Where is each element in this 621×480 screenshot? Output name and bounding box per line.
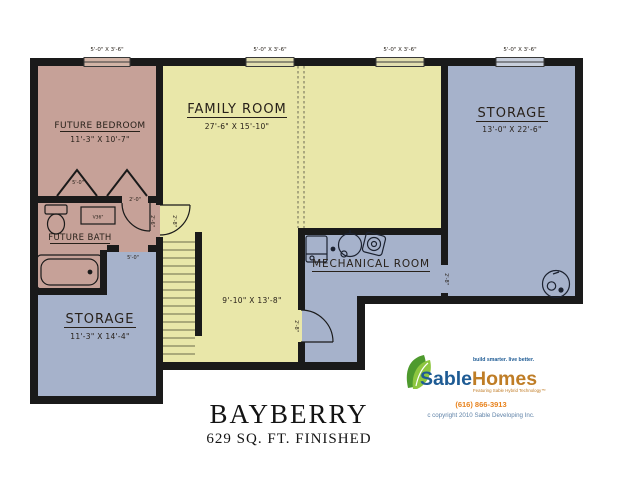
logo-phone: (616) 866-3913 (455, 400, 506, 409)
mech-storage-opening-label: 2'-8" (443, 273, 449, 285)
room-label-future-bedroom: FUTURE BEDROOM (54, 121, 145, 131)
room-label-mechanical: MECHANICAL ROOM (312, 258, 430, 270)
window-family-left (246, 58, 294, 67)
tub-alcove-fill (34, 252, 104, 292)
room-dims-family-room: 27'-6" X 15'-10" (205, 122, 270, 131)
room-label-storage-lower: STORAGE (66, 312, 135, 327)
floor-plan-drawing: 5'-0" X 3'-6" 5'-0" X 3'-6" 5'-0" X 3'-6… (0, 0, 621, 480)
mech-door-size-label: 2'-8" (293, 320, 299, 332)
bath-door-size-label: 2'-0" (129, 197, 141, 203)
window-size-label: 5'-0" X 3'-6" (253, 47, 286, 53)
room-label-family-room: FAMILY ROOM (187, 102, 287, 117)
room-dims-future-bedroom: 11'-3" X 10'-7" (70, 135, 129, 144)
room-storage-upper-fill (444, 62, 578, 300)
plan-subtitle: 629 SQ. FT. FINISHED (206, 431, 371, 447)
hall-door-size-label: 2'-8" (171, 215, 177, 227)
floor-plan-page: 5'-0" X 3'-6" 5'-0" X 3'-6" 5'-0" X 3'-6… (0, 0, 621, 480)
plan-title: BAYBERRY (209, 399, 368, 429)
logo-sub-tagline: Featuring Sable Hybrid Technology™ (473, 388, 546, 393)
hall-side-size-label: 2'-6" (149, 215, 155, 227)
closet-size-label: 5'-0" (72, 180, 84, 186)
logo-tagline: build smarter. live better. (473, 357, 535, 363)
room-label-future-bath: FUTURE BATH (48, 233, 111, 243)
brand-name: SableHomes (420, 368, 537, 390)
room-dims-storage-lower: 11'-3" X 14'-4" (70, 332, 129, 341)
window-size-label: 5'-0" X 3'-6" (503, 47, 536, 53)
window-size-label: 5'-0" X 3'-6" (383, 47, 416, 53)
stair-area-dims: 9'-10" X 13'-8" (222, 296, 281, 305)
window-size-label: 5'-0" X 3'-6" (90, 47, 123, 53)
window-family-right (376, 58, 424, 67)
window-storage (496, 58, 544, 67)
room-dims-storage-upper: 13'-0" X 22'-6" (482, 125, 541, 134)
window-bedroom (84, 58, 130, 67)
sable-homes-logo: SableHomes build smarter. live better. F… (407, 355, 546, 419)
floor-drain-icon (331, 247, 336, 252)
logo-copyright: c copyright 2010 Sable Developing Inc. (427, 412, 535, 419)
vanity-label: V36" (93, 215, 104, 221)
room-family-room-fill (160, 62, 445, 232)
room-label-storage-upper: STORAGE (478, 106, 547, 121)
storage-opening-size-label: 5'-0" (127, 255, 139, 261)
